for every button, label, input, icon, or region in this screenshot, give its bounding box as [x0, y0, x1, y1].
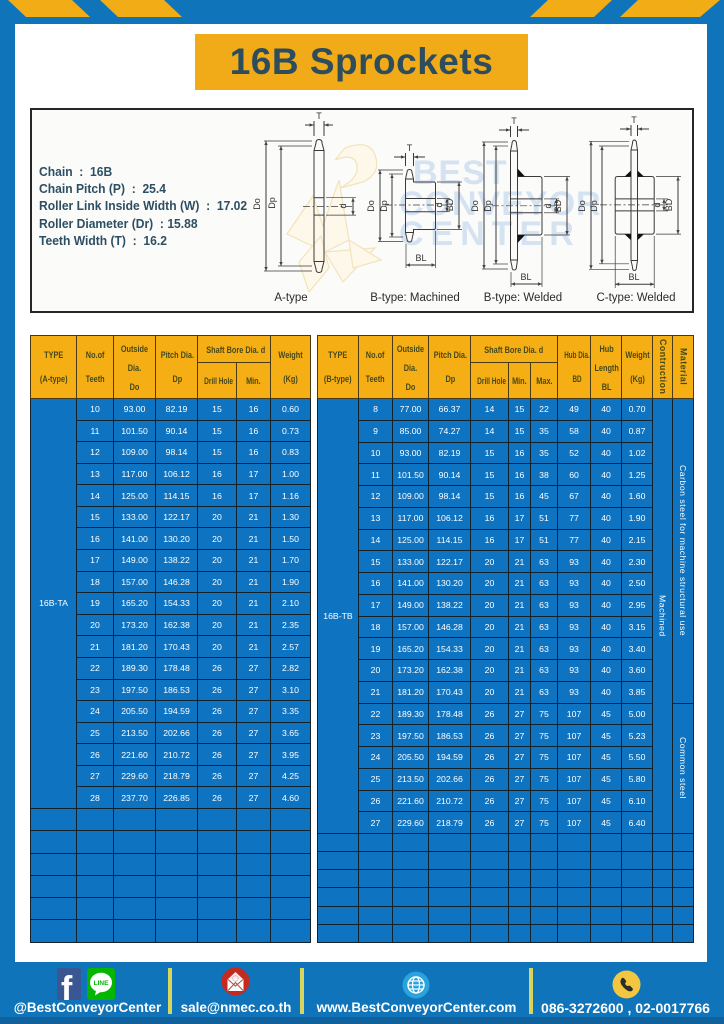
svg-text:d: d	[434, 202, 444, 207]
svg-text:Dp: Dp	[483, 200, 493, 212]
svg-text:Dp: Dp	[267, 197, 277, 209]
svg-text:d: d	[338, 203, 348, 208]
svg-text:Dp: Dp	[379, 200, 389, 212]
svg-text:BL: BL	[520, 272, 531, 282]
svg-text:Dp: Dp	[589, 200, 599, 212]
svg-text:LINE: LINE	[94, 980, 109, 987]
svg-text:Do: Do	[252, 198, 262, 210]
svg-text:T: T	[511, 116, 517, 126]
svg-text:Do: Do	[577, 200, 587, 212]
svg-text:B-type: Machined: B-type: Machined	[370, 292, 460, 304]
svg-text:BL: BL	[628, 272, 639, 282]
svg-text:T: T	[407, 143, 413, 153]
svg-text:T: T	[631, 115, 637, 125]
svg-text:BD: BD	[553, 199, 563, 212]
svg-text:C-type: Welded: C-type: Welded	[596, 292, 675, 304]
svg-text:B-type: Welded: B-type: Welded	[484, 292, 562, 304]
svg-text:A-type: A-type	[274, 292, 307, 304]
svg-text:Do: Do	[366, 200, 376, 212]
svg-text:d: d	[652, 202, 662, 207]
svg-text:Do: Do	[470, 200, 480, 212]
svg-text:BD: BD	[664, 198, 674, 211]
svg-text:T: T	[316, 111, 322, 121]
svg-text:BD: BD	[445, 198, 455, 211]
svg-text:BL: BL	[415, 253, 426, 263]
svg-text:d: d	[543, 203, 553, 208]
